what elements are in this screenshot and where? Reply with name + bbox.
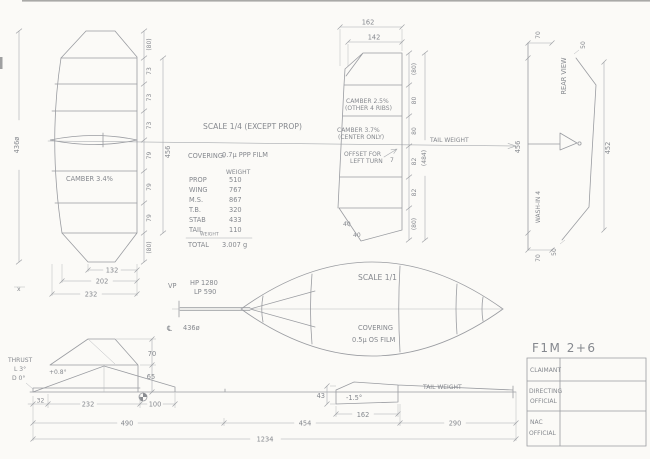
stab-height-dim: 43 [317,392,325,400]
stab-offset-note-1: OFFSET FOR [344,151,381,158]
wing-mount-dim: 232 [82,401,95,409]
weight-row-label-sub: WEIGHT [200,232,219,238]
title-block-row-directing: DIRECTING [529,388,562,395]
weight-row-value: 510 [229,176,242,184]
wing-rib-dim: (80) [146,38,153,50]
prop-lp-value: LP 590 [194,288,216,296]
rear-view-label: REAR VIEW [560,57,568,95]
stab-rib-dim: (80) [411,218,418,230]
drawing-sheet: (80) 73 73 73 79 79 79 (80) 456 436ø x C… [0,0,650,459]
weight-row-value: 433 [229,216,242,224]
motor-stick-dim: 490 [121,419,134,427]
weight-total-label: TOTAL [187,241,209,249]
wing-tip-chord-dim: 132 [106,267,119,275]
prop-covering-note-2: 0.5μ OS FILM [352,336,396,344]
prop-covering-note-1: COVERING [358,324,393,332]
prop-vp-label: VP [168,282,177,290]
covering-note-value: 0.7μ PPP FILM [222,151,268,159]
stab-camber-note-2b: (CENTER ONLY) [338,134,384,141]
stab-offset-note-2: LEFT TURN [350,158,383,165]
weight-row-value: 767 [229,186,242,194]
overall-length-dim: 1234 [257,435,274,443]
wing-height-dim: 65 [147,373,155,381]
stab-rib-dim: 80 [411,97,418,105]
title-block-row-claimant: CLAIMANT [530,367,561,374]
stab-outer-chord-dim: 162 [362,19,375,27]
tail-section-dim: 290 [449,419,462,427]
wing-rib-dim: (80) [146,241,153,253]
stab-rib-dim: 82 [411,189,418,197]
weight-table: WEIGHT PROP 510 WING 767 M.S. 867 T.B. 3… [186,169,252,249]
scan-edge-top [22,0,650,2]
wing-rib-dim: 73 [146,122,153,130]
stab-rib-dim: 82 [411,158,418,166]
stab-incidence-label: -1.5° [346,394,362,402]
drawing-title: F1M 2+6 [532,341,597,355]
wing-rib-dim: 79 [146,183,153,191]
rear-tip-height-dim-top: 70 [535,31,542,39]
wing-incidence-label: +0.8° [49,369,67,376]
centerline-symbol: ℄ [167,324,172,333]
weight-row-label: T.B. [188,206,201,214]
title-block-row-nac: NAC [530,419,543,426]
wash-in-note: WASH-IN 4 [535,191,542,223]
stab-camber-note-2: CAMBER 3.7% [337,127,380,134]
wing-camber-note: CAMBER 3.4% [66,175,113,183]
stab-camber-note-1b: (OTHER 4 RIBS) [345,105,392,112]
prop-drawing: VP HP 1280 LP 590 ℄ 436ø SCALE 1/1 COVER… [167,262,503,356]
tail-weight-side-label: TAIL WEIGHT [422,384,462,391]
weight-total-value: 3.007 g [222,241,247,249]
model-plan-drawing: (80) 73 73 73 79 79 79 (80) 456 436ø x C… [0,0,650,459]
covering-note-label: COVERING: [188,152,225,160]
weight-row-label: PROP [189,176,207,184]
wing-rib-dim: 73 [146,94,153,102]
weight-row-label: WING [189,186,208,194]
weight-table-header: WEIGHT [226,169,251,176]
rear-outline-dim: 452 [604,142,612,155]
wing-root-chord-dim: 232 [85,291,98,299]
stab-tip-angle: 40 [343,221,351,228]
rear-view: 456 70 70 50 50 452 REAR VIEW WASH-IN 4 [514,31,612,262]
general-notes: SCALE 1/4 (EXCEPT PROP) COVERING: 0.7μ P… [188,122,302,160]
wing-rib-dim: 79 [146,152,153,160]
wing-mid-chord-dim: 202 [96,278,109,286]
side-view: +0.8° THRUST L 3° D 0° 70 65 -1.5° TAIL … [7,337,519,444]
weight-row-value: 320 [229,206,242,214]
thrust-label: THRUST [7,357,33,364]
rear-tip-height-dim-bottom: 70 [535,254,542,262]
nose-dim: 32 [37,398,45,405]
weight-row-label: M.S. [189,196,203,204]
rear-tip-rise-dim-top: 50 [580,41,587,49]
prop-diameter-dim: 436ø [183,324,200,332]
stab-inner-chord-dim: 142 [368,34,381,42]
stab-plan-view: 40 40 162 142 (80) 80 80 82 82 (80) (484… [337,19,469,243]
wing-rib-dim: 79 [146,214,153,222]
tail-weight-plan-label: TAIL WEIGHT [429,137,469,144]
weight-row-label: STAB [189,216,206,224]
mid-section-dim: 454 [299,419,312,427]
thrust-down-value: D 0° [12,375,25,382]
prop-scale-note: SCALE 1/1 [358,273,397,282]
stab-rib-dim: 80 [411,127,418,135]
pylon-height-dim: 70 [148,350,156,358]
title-block: F1M 2+6 CLAIMANT DIRECTING OFFICIAL NAC … [527,341,646,446]
title-block-row-nac-2: OFFICIAL [529,430,556,437]
weight-row-value: 110 [229,226,242,234]
stab-rib-dim: (80) [411,63,418,75]
rear-tip-rise-dim-bottom: 50 [551,248,558,256]
rear-span-dim: 456 [514,141,522,154]
wing-te-dim: 100 [149,401,162,409]
scale-note: SCALE 1/4 (EXCEPT PROP) [203,122,302,131]
stab-chord-dim: 162 [357,411,370,419]
thrust-left-value: L 3° [14,366,26,373]
prop-hp-value: HP 1280 [190,279,218,287]
wing-rib-dim: 73 [146,67,153,75]
stab-overall-span-dim: (484) [421,150,428,166]
wing-span-dim: 456 [164,146,172,159]
scan-mark-left [0,57,3,69]
title-block-row-directing-2: OFFICIAL [530,398,557,405]
weight-row-value: 867 [229,196,242,204]
stab-camber-note-1: CAMBER 2.5% [346,98,389,105]
stab-tip-angle: 40 [353,232,361,239]
stab-offset-value: 7 [390,157,394,164]
wing-plan-view: (80) 73 73 73 79 79 79 (80) 456 436ø x C… [13,29,172,299]
wing-projected-span-dim: 436ø [13,137,21,154]
